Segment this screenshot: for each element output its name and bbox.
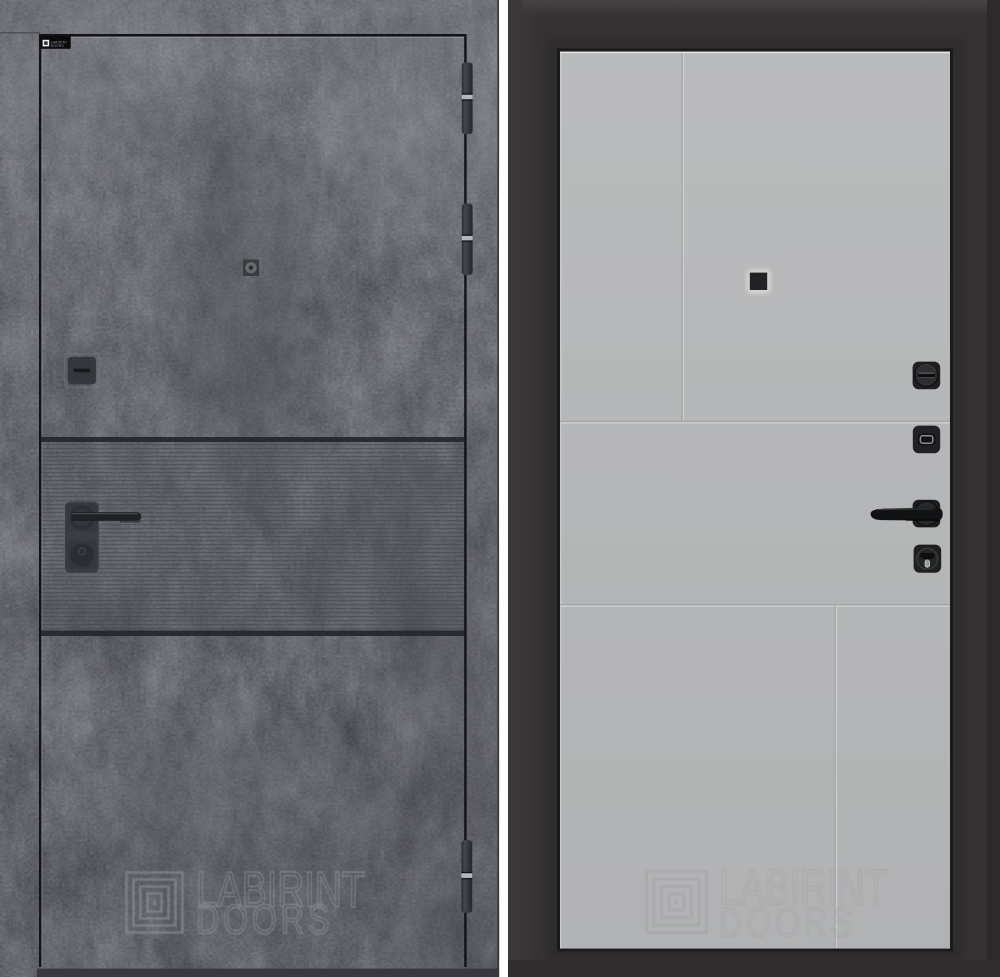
svg-text:DOORS: DOORS [51,44,64,48]
svg-text:DOORS: DOORS [196,895,333,942]
svg-text:DOORS: DOORS [719,898,856,945]
